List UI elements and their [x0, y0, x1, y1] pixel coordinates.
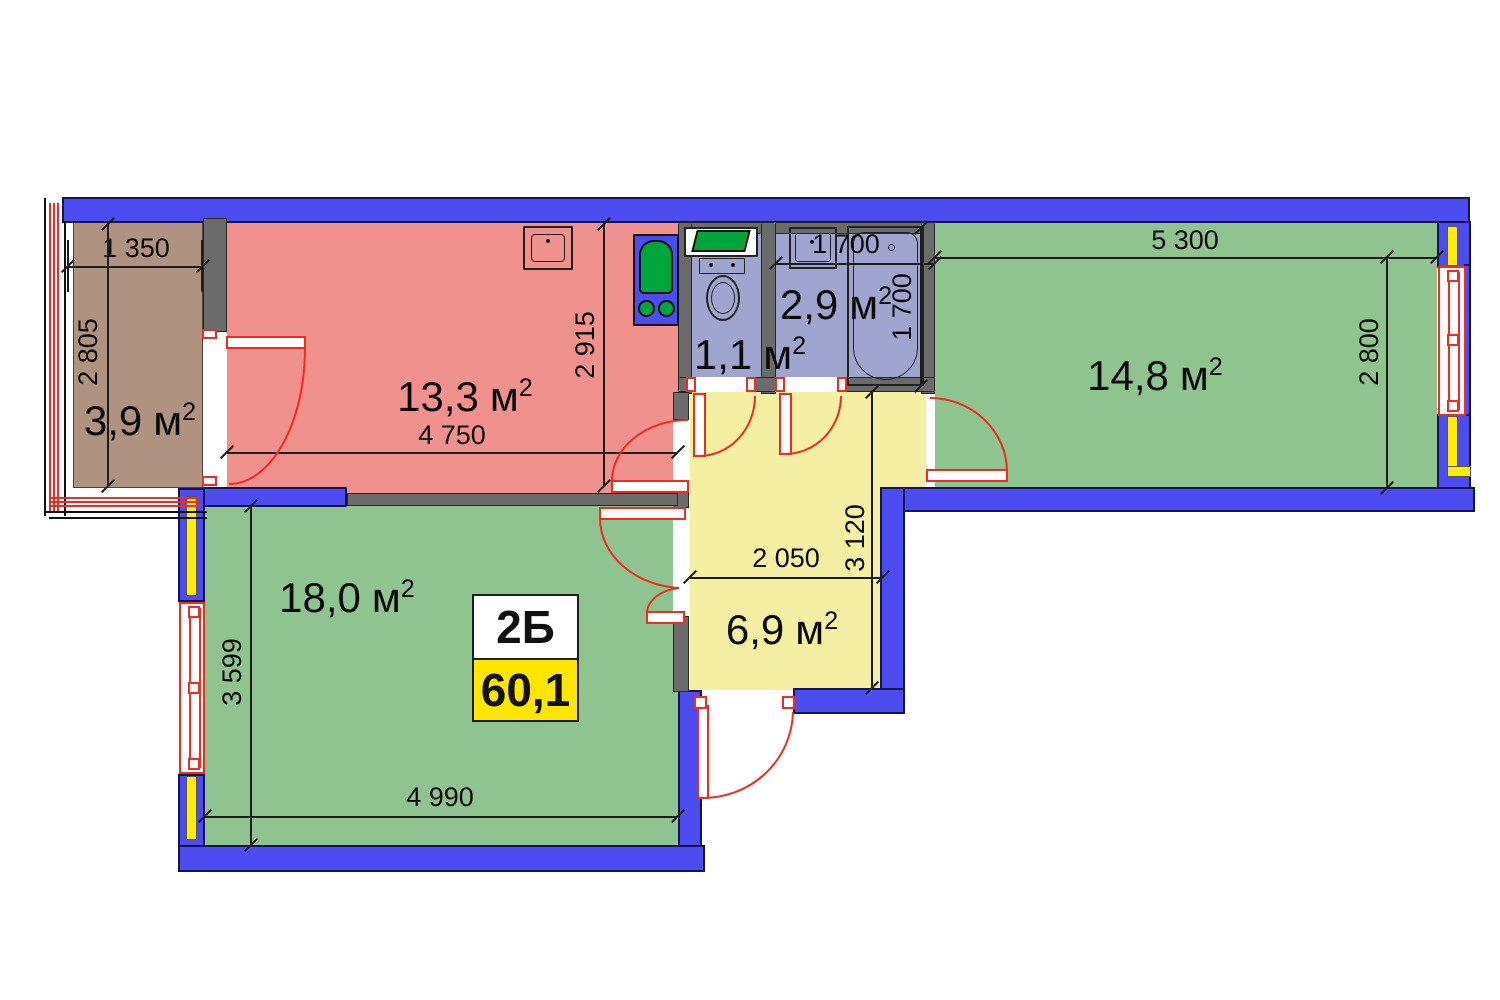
- area-unit: м2: [795, 606, 838, 653]
- door-kitchen-arc: [612, 420, 688, 481]
- door-bedroom-leaf: [600, 508, 685, 519]
- area-unit: м2: [1180, 352, 1223, 399]
- wc-area-value: 1,1: [694, 331, 752, 378]
- label-kitchen-area: 13,3м2: [355, 360, 575, 416]
- door-jamb: [687, 378, 695, 391]
- hallway-area-value: 6,9: [726, 606, 784, 653]
- door-kitchen-leaf: [612, 481, 688, 492]
- label-bathroom-area: 2,9м2: [726, 268, 946, 324]
- door-jamb: [783, 697, 794, 708]
- area-unit: м2: [763, 331, 806, 378]
- area-unit: м2: [372, 574, 415, 621]
- door-jamb: [747, 378, 755, 391]
- balcony-area-value: 3,9: [84, 397, 142, 444]
- door-wc-leaf: [694, 394, 705, 456]
- door-bath-leaf: [780, 394, 791, 454]
- kitchen-area-value: 13,3: [397, 373, 479, 420]
- bathroom-area-value: 2,9: [780, 281, 838, 328]
- door-wc-arc: [699, 396, 755, 456]
- door-living-leaf: [927, 470, 1007, 481]
- apartment-type: 2Б: [474, 596, 577, 660]
- door-jamb: [203, 477, 216, 485]
- area-unit: м2: [153, 397, 196, 444]
- door-bath-arc: [785, 396, 841, 454]
- label-hallway-area: 6,9м2: [672, 593, 892, 649]
- apartment-total-area: 60,1: [474, 660, 577, 720]
- label-living-area: 14,8м2: [1045, 339, 1265, 395]
- door-jamb: [203, 330, 216, 338]
- door-living-arc: [930, 398, 1007, 470]
- living-area-value: 14,8: [1087, 352, 1169, 399]
- door-jamb: [695, 697, 706, 708]
- door-bedroom-arc: [600, 519, 679, 588]
- label-bedroom-area: 18,0м2: [237, 561, 457, 617]
- door-jamb: [776, 378, 784, 391]
- apartment-label: 2Б 60,1: [472, 594, 579, 722]
- door-entry-leaf: [698, 706, 708, 798]
- area-unit: м2: [849, 281, 892, 328]
- floor-plan: 1 350 2 805 4 750 2 915 1 700 1 700 5 30…: [0, 0, 1500, 1000]
- area-unit: м2: [490, 373, 533, 420]
- bedroom-area-value: 18,0: [279, 574, 361, 621]
- door-entry-arc: [703, 712, 793, 798]
- label-balcony-area: 3,9м2: [30, 384, 250, 440]
- doors-overlay: [0, 0, 1500, 1000]
- door-balcony-leaf: [227, 337, 305, 348]
- door-jamb: [838, 378, 846, 391]
